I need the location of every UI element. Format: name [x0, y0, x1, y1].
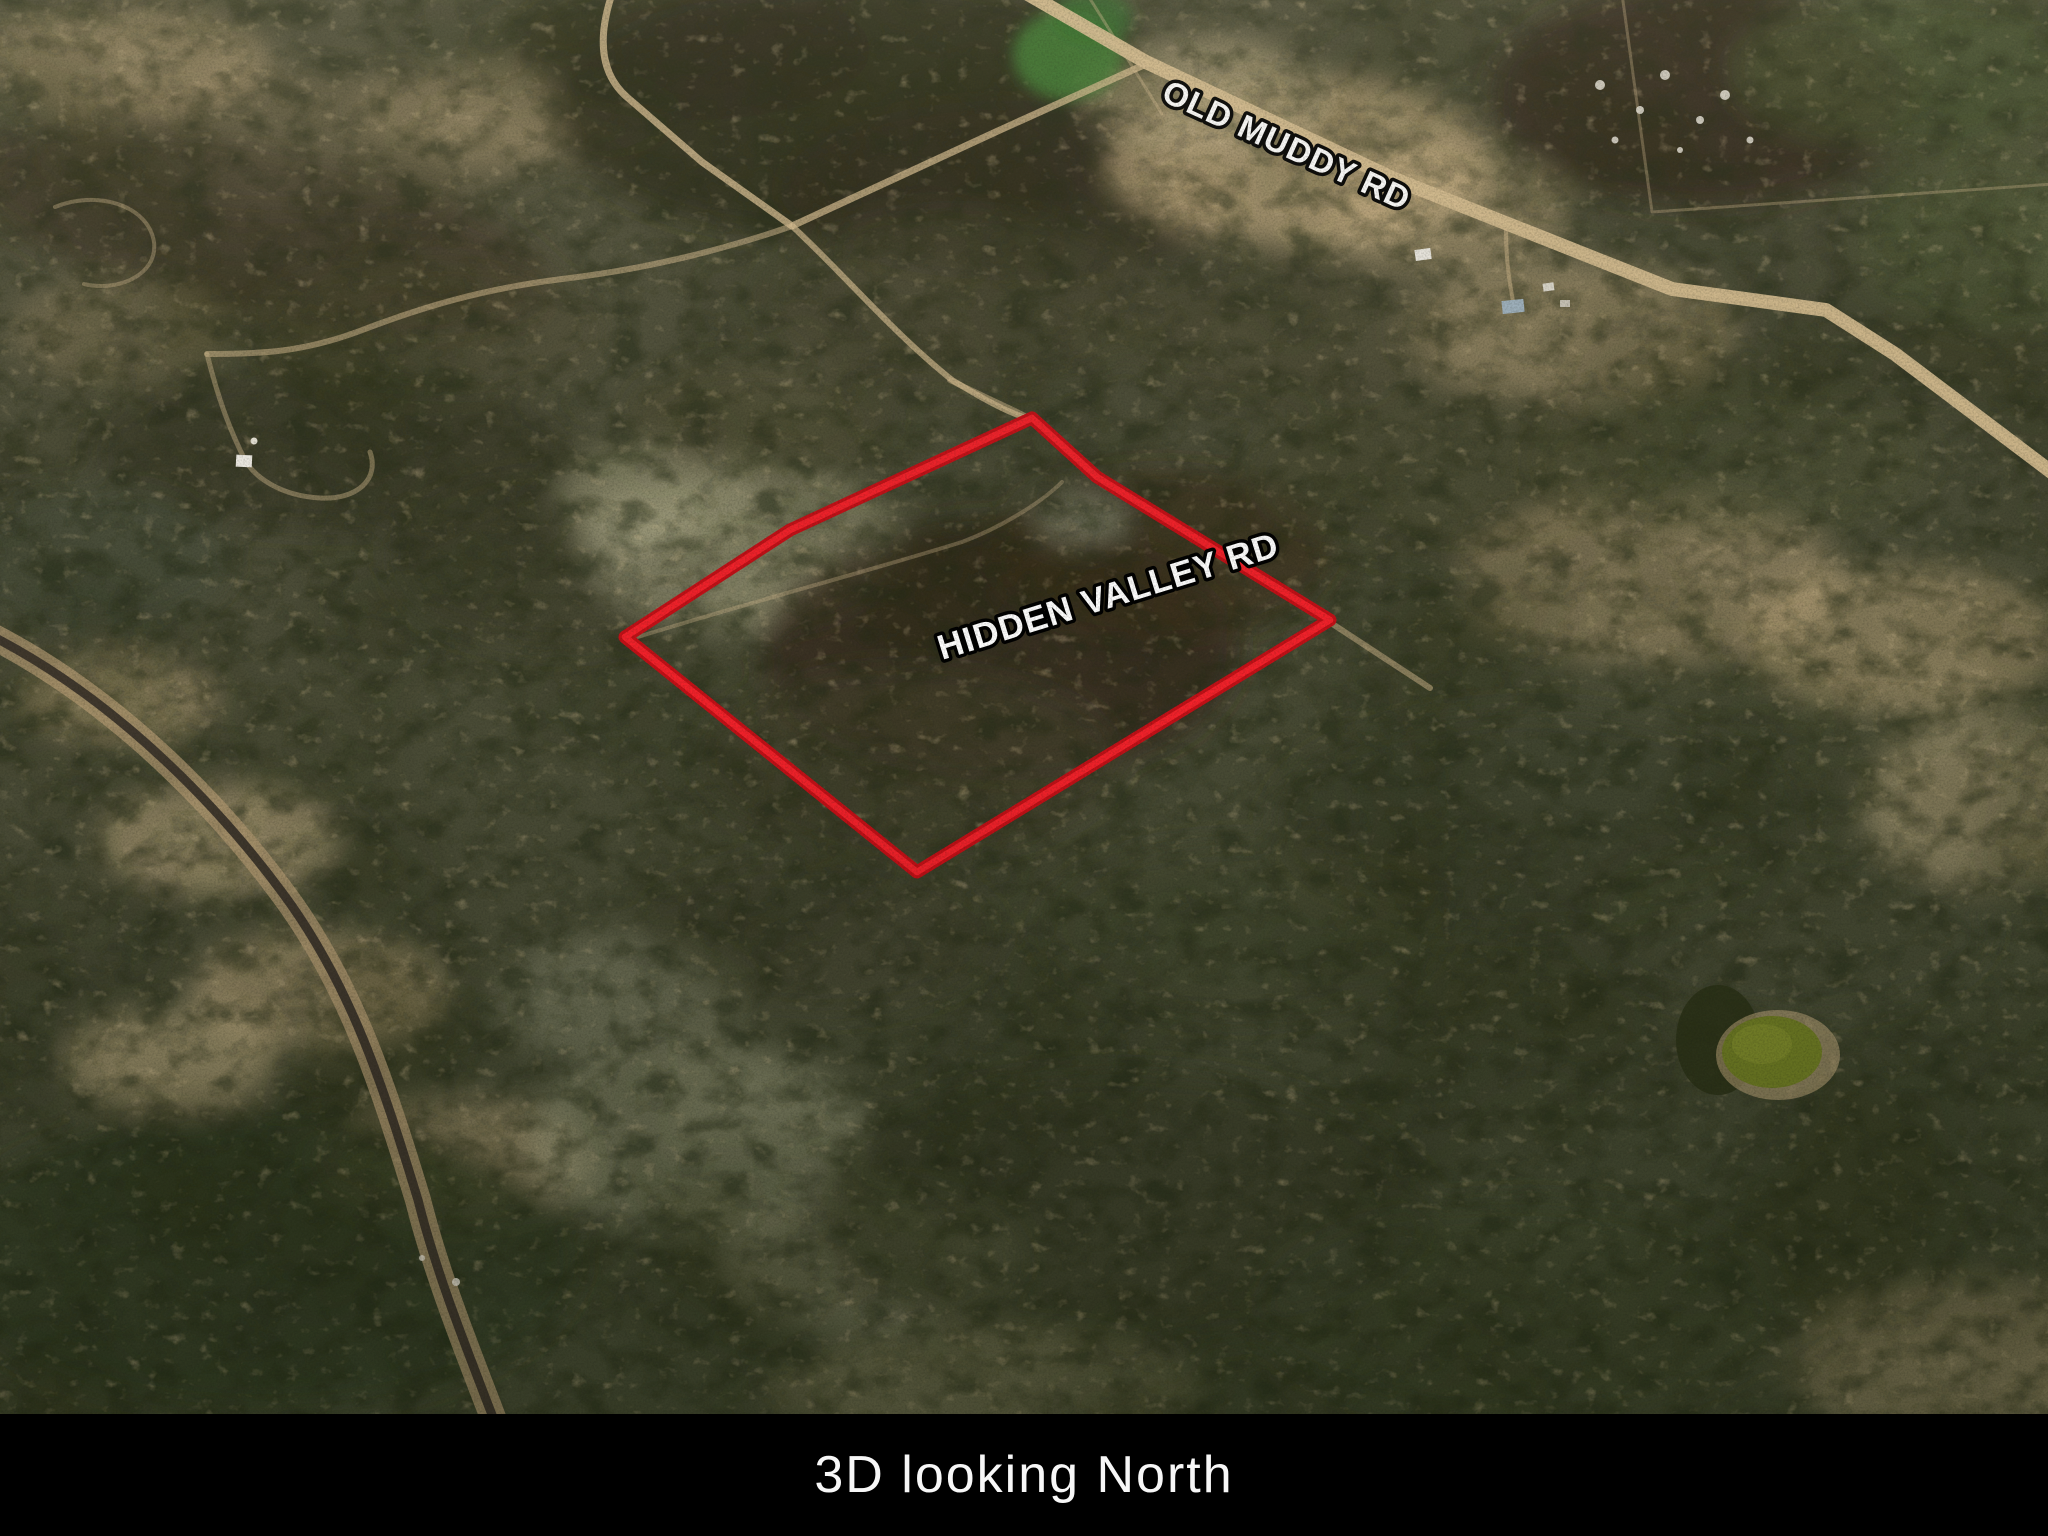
screenshot-root: OLD MUDDY RD HIDDEN VALLEY RD 3D looking… — [0, 0, 2048, 1536]
aerial-map-view[interactable]: OLD MUDDY RD HIDDEN VALLEY RD — [0, 0, 2048, 1414]
aerial-map-canvas: OLD MUDDY RD HIDDEN VALLEY RD — [0, 0, 2048, 1414]
atmosphere-overlay — [0, 0, 2048, 1414]
caption-bar: 3D looking North — [0, 1414, 2048, 1536]
caption-text: 3D looking North — [814, 1445, 1233, 1505]
